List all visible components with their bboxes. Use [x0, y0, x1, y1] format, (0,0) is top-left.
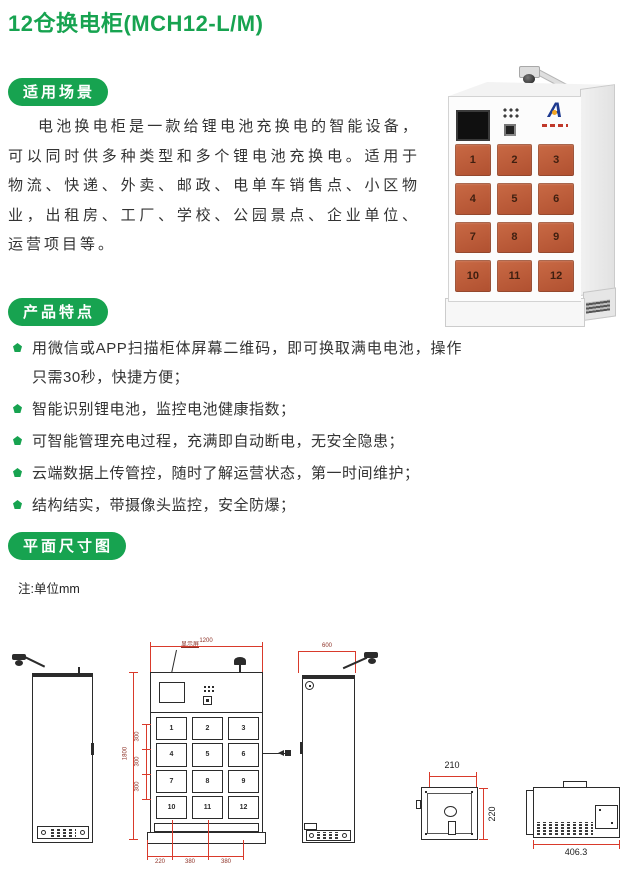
dim-ext — [172, 820, 173, 860]
battery-door: 1 — [455, 144, 491, 176]
door-cell: 9 — [228, 770, 259, 793]
door-cell: 6 — [228, 743, 259, 766]
front-flange — [526, 790, 534, 835]
section-badge-scenarios: 适用场景 — [8, 78, 108, 106]
feature-item: 用微信或APP扫描柜体屏幕二维码，即可换取满电电池，操作只需30秒，快捷方便； — [10, 334, 462, 392]
battery-door: 3 — [538, 144, 574, 176]
dim-line — [483, 788, 484, 840]
door-cell: 7 — [156, 770, 187, 793]
handle — [300, 742, 303, 754]
dim-label-380: 380 — [214, 859, 238, 866]
battery-door-grid: 1 2 3 4 5 6 7 8 9 10 11 12 — [455, 144, 574, 292]
dim-line-bottom — [147, 856, 244, 857]
lock-detail — [285, 750, 291, 756]
battery-door: 5 — [497, 183, 533, 215]
vent-grille — [317, 832, 339, 839]
screw-dot — [471, 791, 473, 793]
slot-detail — [448, 821, 456, 835]
bolt-hole — [342, 833, 347, 838]
kick-panel — [154, 823, 259, 832]
door-grid-outline: 1 2 3 4 5 6 7 8 9 10 11 12 — [156, 717, 259, 819]
dim-line-width — [150, 646, 263, 647]
door-cell: 3 — [228, 717, 259, 740]
cabinet-outline — [32, 673, 93, 843]
dim-tick — [142, 749, 151, 750]
speaker-grille-icon — [502, 107, 521, 120]
feature-text: 云端数据上传管控，随时了解运营状态，第一时间维护； — [32, 465, 420, 482]
cabinet-outline — [302, 675, 355, 843]
dim-tick — [142, 724, 151, 725]
dim-ext — [243, 840, 244, 860]
lock-arrow — [278, 750, 284, 756]
dim-label-300: 300 — [135, 777, 142, 797]
dim-label-220: 220 — [148, 859, 172, 866]
brand-text-mark — [542, 124, 568, 127]
screw-dot — [471, 833, 473, 835]
dimension-drawings: 1200 显示屏 1 2 3 4 5 6 7 8 9 10 11 — [0, 630, 630, 870]
dim-label-220: 220 — [487, 800, 497, 828]
screw-dot — [425, 833, 427, 835]
feature-text: 可智能管理充电过程，充满即自动断电，无安全隐患； — [32, 433, 404, 450]
cabinet-screen — [456, 110, 490, 141]
handle — [91, 743, 94, 755]
camera-stem — [239, 664, 241, 672]
section-badge-dimensions: 平面尺寸图 — [8, 532, 126, 560]
battery-door: 7 — [455, 222, 491, 254]
dim-tick — [129, 839, 138, 840]
product-sheet: 12仓换电柜(MCH12-L/M) 适用场景 电池换电柜是一款给锂电池充换电的智… — [0, 0, 630, 870]
brand-logo: A — [538, 100, 572, 122]
page-title: 12仓换电柜(MCH12-L/M) — [8, 6, 263, 38]
label-plate — [304, 823, 317, 830]
feature-item: 可智能管理充电过程，充满即自动断电，无安全隐患； — [10, 427, 462, 456]
section-badge-features: 产品特点 — [8, 298, 108, 326]
door-cell: 1 — [156, 717, 187, 740]
dim-line-rows — [146, 724, 147, 800]
brand-logo-dot — [552, 110, 557, 115]
bullet-icon — [13, 468, 22, 477]
lock-dot — [309, 685, 311, 687]
battery-door: 9 — [538, 222, 574, 254]
vent-grille — [537, 822, 593, 835]
dim-tick — [533, 840, 534, 849]
door-cell: 10 — [156, 796, 187, 819]
cabinet-base — [445, 298, 585, 327]
dim-tick — [142, 799, 151, 800]
dim-tick — [479, 839, 488, 840]
dim-ext — [429, 772, 430, 788]
feature-item: 智能识别锂电池，监控电池健康指数； — [10, 395, 462, 424]
door-cell: 11 — [192, 796, 223, 819]
dim-ext — [476, 772, 477, 788]
bullet-icon — [13, 343, 22, 352]
feature-item: 结构结实，带摄像头监控，安全防爆； — [10, 491, 462, 520]
feature-list: 用微信或APP扫描柜体屏幕二维码，即可换取满电电池，操作只需30秒，快捷方便； … — [10, 334, 462, 523]
bolt-hole — [309, 833, 314, 838]
camera-dome — [15, 660, 23, 666]
camera-dome — [523, 74, 535, 84]
screw-dot — [599, 809, 601, 811]
hinge-tab — [416, 800, 421, 809]
bullet-icon — [13, 500, 22, 509]
door-cell: 4 — [156, 743, 187, 766]
qr-code-icon — [504, 124, 516, 136]
dim-ext — [208, 820, 209, 860]
speaker-grille-icon — [203, 685, 214, 693]
dim-line-depth — [298, 651, 356, 652]
feature-text: 结构结实，带摄像头监控，安全防爆； — [32, 497, 296, 514]
dim-label-210: 210 — [436, 760, 468, 770]
header-divider — [150, 712, 263, 713]
dim-tick — [619, 840, 620, 849]
screw-dot — [611, 822, 613, 824]
battery-door: 6 — [538, 183, 574, 215]
dim-label-300: 300 — [135, 727, 142, 747]
dim-label-406-3: 406.3 — [554, 847, 598, 857]
dim-line — [429, 776, 476, 777]
dim-label-380: 380 — [178, 859, 202, 866]
base-panel — [147, 832, 266, 844]
screen-outline — [159, 682, 185, 703]
dim-tick — [129, 672, 138, 673]
camera-icon — [234, 657, 246, 665]
dim-label-300: 300 — [135, 752, 142, 772]
battery-door: 11 — [497, 260, 533, 292]
cabinet-side-face — [580, 84, 615, 296]
dim-ext — [147, 840, 148, 860]
dim-line — [533, 844, 620, 845]
door-cell: 8 — [192, 770, 223, 793]
door-cell: 5 — [192, 743, 223, 766]
scenario-paragraph: 电池换电柜是一款给锂电池充换电的智能设备，可以同时供多种类型和多个锂电池充换电。… — [8, 112, 420, 260]
bolt-hole — [80, 830, 85, 835]
battery-door: 4 — [455, 183, 491, 215]
feature-text: 智能识别锂电池，监控电池健康指数； — [32, 401, 296, 418]
bullet-icon — [13, 404, 22, 413]
screen-label: 显示屏 — [176, 642, 204, 649]
unit-note: 注:单位mm — [18, 578, 80, 597]
connector-hole — [444, 806, 457, 817]
battery-door: 8 — [497, 222, 533, 254]
feature-item: 云端数据上传管控，随时了解运营状态，第一时间维护； — [10, 459, 462, 488]
dim-ext — [150, 642, 151, 672]
product-photo: A 1 2 3 4 5 6 7 8 9 10 11 12 — [420, 58, 626, 332]
dim-tick — [142, 774, 151, 775]
door-cell: 2 — [192, 717, 223, 740]
dim-ext — [262, 642, 263, 672]
qr-dot — [206, 699, 209, 702]
dim-tick — [479, 788, 488, 789]
battery-door: 12 — [538, 260, 574, 292]
feature-text: 用微信或APP扫描柜体屏幕二维码，即可换取满电电池，操作只需30秒，快捷方便； — [32, 340, 462, 386]
battery-door: 10 — [455, 260, 491, 292]
bolt-hole — [41, 830, 46, 835]
bullet-icon — [13, 436, 22, 445]
dim-label-600: 600 — [314, 643, 340, 650]
door-cell: 12 — [228, 796, 259, 819]
camera-dome — [368, 658, 376, 664]
vent-grille — [51, 829, 76, 837]
dim-label-1800: 1800 — [123, 742, 130, 766]
dim-ext — [298, 651, 299, 673]
battery-door: 2 — [497, 144, 533, 176]
screw-dot — [425, 791, 427, 793]
